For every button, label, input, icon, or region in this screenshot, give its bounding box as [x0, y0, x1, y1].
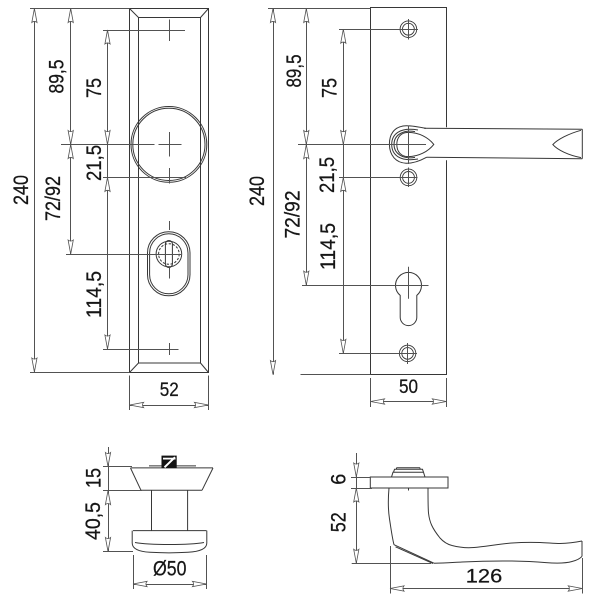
svg-text:52: 52: [160, 380, 179, 401]
svg-text:6: 6: [328, 474, 351, 485]
svg-text:72/92: 72/92: [281, 191, 304, 239]
svg-text:21,5: 21,5: [83, 145, 106, 181]
svg-text:15: 15: [83, 468, 106, 488]
svg-text:50: 50: [399, 377, 418, 398]
svg-text:89,5: 89,5: [46, 60, 69, 94]
svg-text:40,5: 40,5: [82, 502, 105, 540]
svg-text:240: 240: [10, 175, 33, 205]
svg-text:114,5: 114,5: [317, 223, 340, 270]
svg-text:72/92: 72/92: [42, 176, 65, 221]
svg-text:89,5: 89,5: [283, 55, 306, 88]
svg-text:114,5: 114,5: [83, 271, 106, 318]
svg-text:240: 240: [246, 176, 269, 206]
svg-text:75: 75: [83, 78, 106, 98]
svg-text:Ø50: Ø50: [153, 557, 187, 581]
svg-text:75: 75: [319, 78, 342, 98]
svg-text:126: 126: [466, 567, 503, 588]
svg-text:21,5: 21,5: [316, 157, 339, 193]
svg-text:52: 52: [328, 512, 351, 532]
